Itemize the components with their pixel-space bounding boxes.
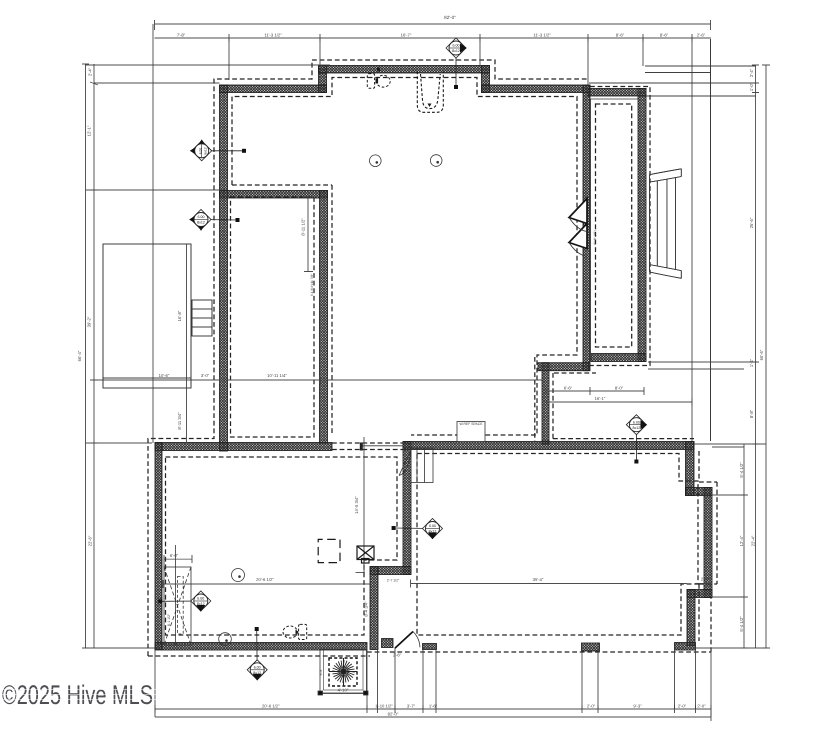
svg-text:20'-6 1/2": 20'-6 1/2" [256, 577, 274, 582]
svg-text:16'-1": 16'-1" [595, 396, 606, 401]
svg-text:6.00: 6.00 [254, 665, 261, 669]
svg-text:1'-4": 1'-4" [749, 358, 754, 367]
svg-text:5'-4 1/2": 5'-4 1/2" [739, 462, 744, 478]
svg-text:35'-4": 35'-4" [533, 577, 544, 582]
svg-text:22'-4": 22'-4" [751, 535, 756, 546]
svg-text:8x12: 8x12 [204, 147, 208, 154]
svg-text:8x12: 8x12 [429, 530, 437, 534]
svg-text:4'-10": 4'-10" [338, 688, 349, 693]
svg-text:8x12: 8x12 [452, 49, 460, 53]
svg-text:8x12: 8x12 [197, 221, 205, 225]
svg-text:10'-11 1/4": 10'-11 1/4" [267, 373, 287, 378]
svg-text:16'-7": 16'-7" [401, 33, 412, 38]
svg-text:82'-0": 82'-0" [388, 712, 399, 717]
svg-text:6.00: 6.00 [198, 148, 202, 155]
svg-text:8x12: 8x12 [253, 671, 261, 675]
svg-text:10'-6": 10'-6" [159, 373, 170, 378]
svg-text:6'-9": 6'-9" [319, 668, 323, 676]
svg-text:8x12: 8x12 [633, 426, 641, 430]
svg-text:12'-4": 12'-4" [739, 535, 744, 546]
svg-text:8'-8": 8'-8" [749, 409, 754, 418]
svg-text:2'-4": 2'-4" [749, 68, 754, 77]
svg-text:11'-3 1/2": 11'-3 1/2" [264, 33, 282, 38]
svg-text:6.00: 6.00 [197, 597, 204, 601]
svg-text:66'-4": 66'-4" [77, 350, 82, 361]
svg-text:12'-1": 12'-1" [87, 125, 92, 136]
svg-text:1'-6": 1'-6" [429, 704, 438, 709]
svg-text:6.00: 6.00 [633, 420, 640, 424]
svg-text:16'-8": 16'-8" [177, 310, 182, 321]
svg-text:1'-10 1/2": 1'-10 1/2" [375, 704, 393, 709]
svg-text:8'-4 3/4": 8'-4 3/4" [364, 601, 369, 617]
svg-text:2'-0": 2'-0" [678, 704, 687, 709]
svg-text:82'-0": 82'-0" [444, 15, 456, 20]
svg-text:26'-6": 26'-6" [749, 217, 754, 228]
svg-text:8'-0": 8'-0" [615, 386, 624, 391]
svg-text:8x12: 8x12 [197, 602, 205, 606]
svg-text:5'-4 1/2": 5'-4 1/2" [739, 616, 744, 632]
svg-text:22'-6": 22'-6" [88, 535, 93, 546]
svg-text:8'-6": 8'-6" [616, 33, 625, 38]
svg-text:2'-0": 2'-0" [701, 577, 710, 582]
svg-text:2'-6": 2'-6" [393, 653, 402, 658]
svg-text:8'-11 1/2": 8'-11 1/2" [301, 218, 306, 236]
svg-text:39'-2": 39'-2" [87, 316, 92, 327]
svg-text:6'-0": 6'-0" [170, 553, 179, 558]
svg-text:65'-6": 65'-6" [759, 349, 764, 360]
svg-text:6"x6" (4E): 6"x6" (4E) [593, 230, 597, 244]
svg-text:2'-6": 2'-6" [697, 33, 706, 38]
svg-text:8'-6": 8'-6" [660, 33, 669, 38]
svg-text:3-1 3/4"x11 7/8": 3-1 3/4"x11 7/8" [310, 274, 314, 296]
svg-text:6'-6": 6'-6" [564, 386, 573, 391]
svg-text:2'-0": 2'-0" [587, 704, 596, 709]
svg-text:2'-4": 2'-4" [88, 67, 93, 76]
svg-text:6.00: 6.00 [429, 524, 436, 528]
svg-text:2'-7 1/2": 2'-7 1/2" [387, 579, 400, 583]
svg-text:9'-3": 9'-3" [633, 704, 642, 709]
svg-text:7'-8": 7'-8" [177, 33, 186, 38]
svg-text:11'-3 1/2": 11'-3 1/2" [533, 33, 551, 38]
svg-text:6.00: 6.00 [453, 44, 460, 48]
svg-text:14'-5 3/4": 14'-5 3/4" [354, 496, 359, 514]
svg-text:8'-11 3/4": 8'-11 3/4" [177, 412, 182, 430]
svg-text:6.00: 6.00 [198, 215, 205, 219]
svg-text:W.REF SPACE: W.REF SPACE [460, 422, 484, 426]
svg-text:3'-7": 3'-7" [407, 704, 416, 709]
svg-text:8'-1 1/2": 8'-1 1/2" [167, 613, 171, 626]
svg-text:2'-0": 2'-0" [697, 704, 706, 709]
svg-text:20'-6 1/2": 20'-6 1/2" [262, 704, 280, 709]
svg-text:3'-0": 3'-0" [201, 373, 210, 378]
svg-text:1'-0": 1'-0" [749, 82, 754, 91]
